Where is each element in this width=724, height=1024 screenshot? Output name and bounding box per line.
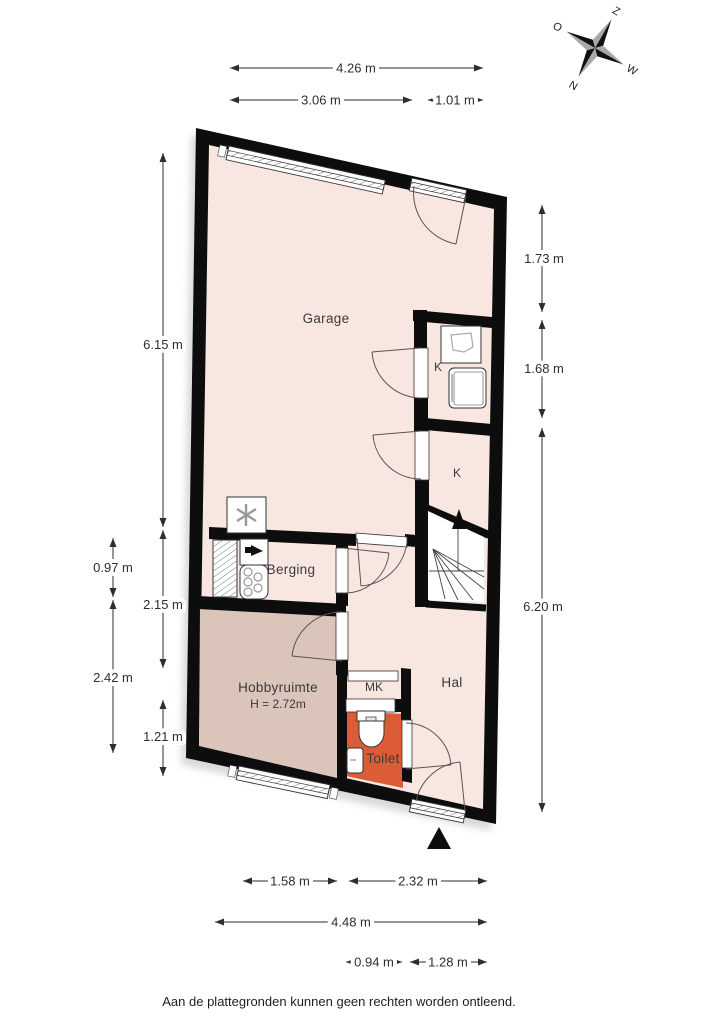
room-label-k2: K bbox=[453, 466, 461, 480]
room-label-toilet: Toilet bbox=[366, 751, 399, 766]
compass-west-label: W bbox=[624, 63, 640, 79]
floorplan-svg: Garage K K Berging Hobbyruimte H = 2.72m… bbox=[0, 0, 724, 1024]
dimension-label: 2.42 m bbox=[93, 670, 133, 685]
boiler-icon bbox=[240, 565, 268, 599]
dimension-label: 4.26 m bbox=[336, 61, 376, 76]
dimension-label: 2.32 m bbox=[398, 874, 438, 889]
compass-east-label: O bbox=[551, 20, 565, 35]
dimension-label: 1.68 m bbox=[524, 361, 564, 376]
dimensions-top: 4.26 m 3.06 m 1.01 m bbox=[230, 61, 483, 108]
dimension-label: 3.06 m bbox=[301, 93, 341, 108]
ventilation-unit-icon bbox=[227, 497, 266, 533]
dimension-label: 6.15 m bbox=[143, 337, 183, 352]
laundry-basket-icon bbox=[441, 326, 481, 363]
room-label-garage: Garage bbox=[303, 311, 350, 326]
dimensions-left: 6.15 m 0.97 m 2.42 m 2.15 m 1.21 m bbox=[93, 153, 183, 776]
dimensions-bottom: 1.58 m 2.32 m 4.48 m 0.94 m 1.28 m bbox=[215, 874, 487, 970]
entrance-arrow bbox=[427, 827, 451, 849]
dimension-label: 4.48 m bbox=[331, 915, 371, 930]
room-label-k1: K bbox=[434, 360, 442, 374]
dimensions-right: 1.73 m 1.68 m 6.20 m bbox=[523, 205, 564, 812]
room-label-hal: Hal bbox=[441, 675, 462, 690]
footer-disclaimer: Aan de plattegronden kunnen geen rechten… bbox=[162, 994, 515, 1009]
compass-south-label: Z bbox=[610, 5, 622, 19]
cupboard-icon bbox=[213, 540, 237, 597]
dimension-label: 1.73 m bbox=[524, 251, 564, 266]
compass-rose: Z W N O bbox=[529, 0, 661, 116]
toilet-icon bbox=[357, 711, 385, 747]
room-label-mk: MK bbox=[365, 680, 383, 694]
dimension-label: 1.28 m bbox=[428, 955, 468, 970]
stairs-bottom-wall bbox=[426, 604, 486, 608]
dimension-label: 0.97 m bbox=[93, 560, 133, 575]
room-label-berging: Berging bbox=[267, 562, 316, 577]
washing-machine-icon bbox=[449, 368, 486, 408]
dimension-label: 1.01 m bbox=[435, 93, 475, 108]
sink-icon bbox=[240, 539, 268, 565]
dimension-label: 1.58 m bbox=[270, 874, 310, 889]
hand-basin-icon bbox=[347, 748, 363, 773]
room-label-hobby-height: H = 2.72m bbox=[250, 697, 306, 711]
compass-star-icon bbox=[550, 3, 640, 93]
room-label-hobbyruimte: Hobbyruimte bbox=[238, 680, 318, 695]
floorplan-page: Garage K K Berging Hobbyruimte H = 2.72m… bbox=[0, 0, 724, 1024]
compass-north-label: N bbox=[567, 79, 580, 93]
dimension-label: 2.15 m bbox=[143, 597, 183, 612]
dimension-label: 0.94 m bbox=[354, 955, 394, 970]
dimension-label: 1.21 m bbox=[143, 729, 183, 744]
dimension-label: 6.20 m bbox=[523, 599, 563, 614]
